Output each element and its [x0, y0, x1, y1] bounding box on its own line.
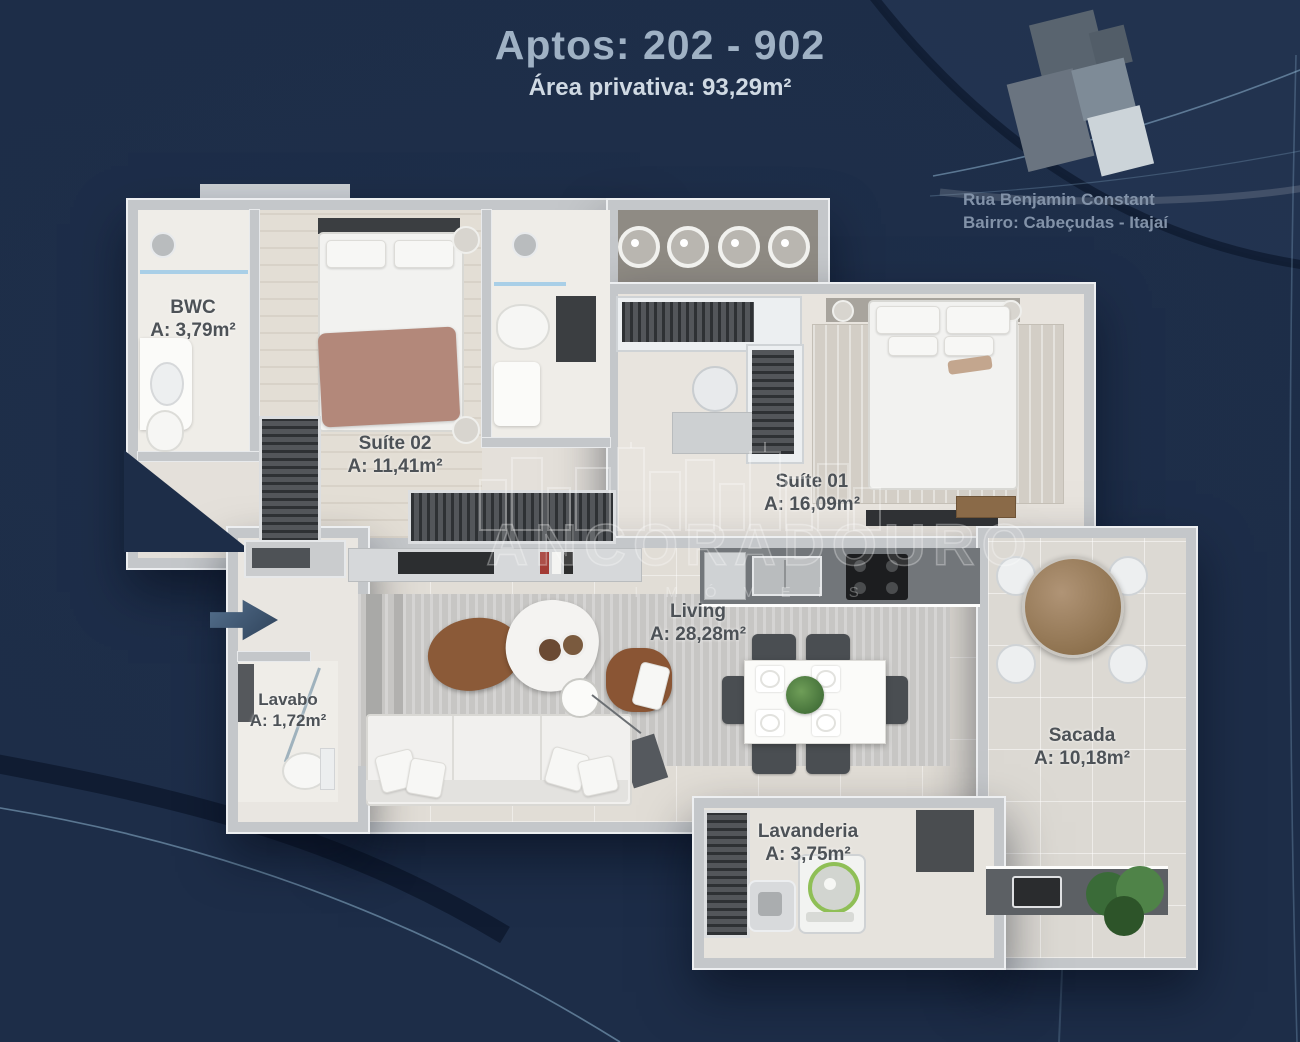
bath2-shower-glass [494, 282, 566, 286]
room-label-lavabo: Lavabo A: 1,72m² [236, 690, 340, 731]
project-address: Rua Benjamin Constant Bairro: Cabeçudas … [963, 188, 1223, 235]
sofa-pillow-2 [405, 757, 447, 799]
room-label-suite01: Suíte 01 A: 16,09m² [712, 470, 912, 516]
lavanderia-tank-basin [758, 892, 782, 916]
wall-suite02-bath2 [482, 210, 491, 446]
address-street: Rua Benjamin Constant [963, 190, 1155, 209]
wall-lavabo-top [238, 652, 310, 661]
sacada-plant-3 [1104, 896, 1144, 936]
room-label-living: Living A: 28,28m² [608, 600, 788, 646]
sideboard-book-black [564, 552, 573, 574]
room-area: A: 11,41m² [295, 455, 495, 478]
decor-plate-4-center [781, 239, 789, 247]
room-name: Sacada [1049, 725, 1116, 746]
sofa-seam-1 [452, 716, 454, 780]
decor-plate-1 [618, 226, 660, 268]
suite01-desk [672, 412, 756, 454]
lavanderia-cabinet-right [916, 810, 974, 872]
room-area: A: 3,79m² [136, 319, 250, 342]
suite01-closet-right-slats [752, 350, 794, 454]
bath2-sink [494, 362, 540, 426]
shower-head-icon [150, 232, 176, 258]
room-label-lavanderia: Lavanderia A: 3,75m² [718, 820, 898, 866]
washing-machine-panel [806, 912, 854, 922]
wall-bwc-bottom [138, 452, 259, 461]
bwc-shower-glass [140, 270, 248, 274]
bath2-shower-head-icon [512, 232, 538, 258]
suite01-closet-top-slats [622, 302, 754, 342]
wall-bath2-bottom [482, 438, 610, 447]
sofa-seam-2 [540, 716, 542, 780]
cooktop-burner-2 [886, 560, 898, 572]
sideboard-book-white [552, 552, 561, 574]
wall-bwc-suite02 [250, 210, 259, 460]
suite01-sconce-left [832, 300, 854, 322]
room-label-bwc: BWC A: 3,79m² [136, 296, 250, 342]
living-tv [398, 552, 494, 574]
room-label-suite02: Suíte 02 A: 11,41m² [295, 432, 495, 478]
suite01-pillow-2 [946, 306, 1010, 334]
entry-shoe-cabinet-open [252, 548, 310, 568]
cooktop-burner-1 [854, 560, 866, 572]
dining-plate-3 [756, 710, 784, 736]
coffee-cup-2 [560, 632, 586, 658]
suite02-wardrobe [408, 490, 616, 544]
room-area: A: 10,18m² [992, 747, 1172, 770]
decor-plate-4 [768, 226, 810, 268]
suite02-blanket [318, 326, 461, 427]
bwc-toilet [146, 410, 184, 452]
kitchen-appliance [704, 552, 746, 600]
room-name: Lavanderia [758, 821, 858, 842]
suite02-side-table-top [452, 226, 480, 254]
suite01-pillow-3 [888, 336, 938, 356]
suite02-pillow-right [394, 240, 454, 268]
sacada-chair-3 [996, 644, 1036, 684]
suite01-chair [692, 366, 738, 412]
address-district: Bairro: Cabeçudas - Itajaí [963, 213, 1168, 232]
cooktop-burner-4 [886, 582, 898, 594]
room-area: A: 3,75m² [718, 843, 898, 866]
suite01-bench [956, 496, 1016, 518]
washing-machine-drum-center [824, 878, 836, 890]
building-keyplan-icon [985, 8, 1190, 178]
suite02-pillow-left [326, 240, 386, 268]
decor-plate-3 [718, 226, 760, 268]
kitchen-sink [752, 556, 822, 596]
kitchen-sink-divider [784, 560, 786, 588]
dining-plate-1 [756, 666, 784, 692]
room-name: Suíte 02 [359, 433, 432, 454]
bath2-toilet [496, 304, 550, 350]
lavabo-toilet-tank [320, 748, 335, 790]
room-area: A: 28,28m² [608, 623, 788, 646]
decor-plate-3-center [731, 239, 739, 247]
bath2-shelf [556, 296, 596, 362]
suite01-pillow-4 [944, 336, 994, 356]
room-name: Lavabo [258, 690, 318, 709]
room-area: A: 16,09m² [712, 493, 912, 516]
floorplan-poster: Aptos: 202 - 902 Área privativa: 93,29m²… [0, 0, 1300, 1042]
room-name: BWC [170, 297, 215, 318]
decor-plate-2 [667, 226, 709, 268]
sacada-round-table [1022, 556, 1124, 658]
room-label-sacada: Sacada A: 10,18m² [992, 724, 1172, 770]
suite01-pillow-1 [876, 306, 940, 334]
sideboard-book-red [540, 552, 549, 574]
cooktop-burner-3 [854, 582, 866, 594]
bwc-sink-bowl [150, 362, 184, 406]
sacada-desk-monitor [1012, 876, 1062, 908]
keyplan-highlighted-unit [1087, 105, 1154, 176]
sacada-chair-4 [1108, 644, 1148, 684]
sofa-pillow-4 [577, 755, 620, 798]
dining-plate-4 [812, 710, 840, 736]
living-sideboard [348, 548, 642, 582]
decor-plate-2-center [680, 239, 688, 247]
decor-plate-1-center [631, 239, 639, 247]
dining-centerpiece-plant [786, 676, 824, 714]
room-name: Suíte 01 [776, 471, 849, 492]
room-area: A: 1,72m² [236, 711, 340, 732]
room-name: Living [670, 601, 726, 622]
